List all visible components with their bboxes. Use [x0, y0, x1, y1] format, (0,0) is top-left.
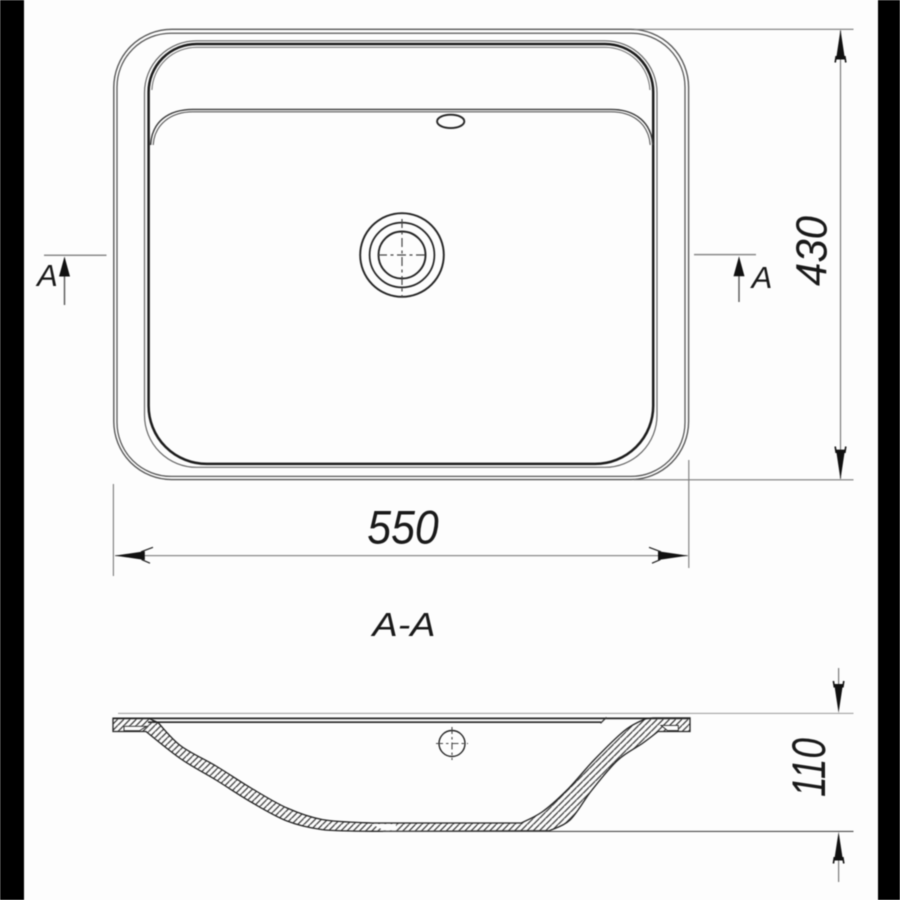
svg-text:110: 110: [782, 738, 835, 797]
svg-text:430: 430: [788, 216, 837, 286]
svg-text:A: A: [750, 260, 773, 295]
svg-text:A-A: A-A: [370, 606, 435, 643]
svg-text:550: 550: [367, 501, 439, 554]
svg-text:A: A: [35, 258, 58, 293]
